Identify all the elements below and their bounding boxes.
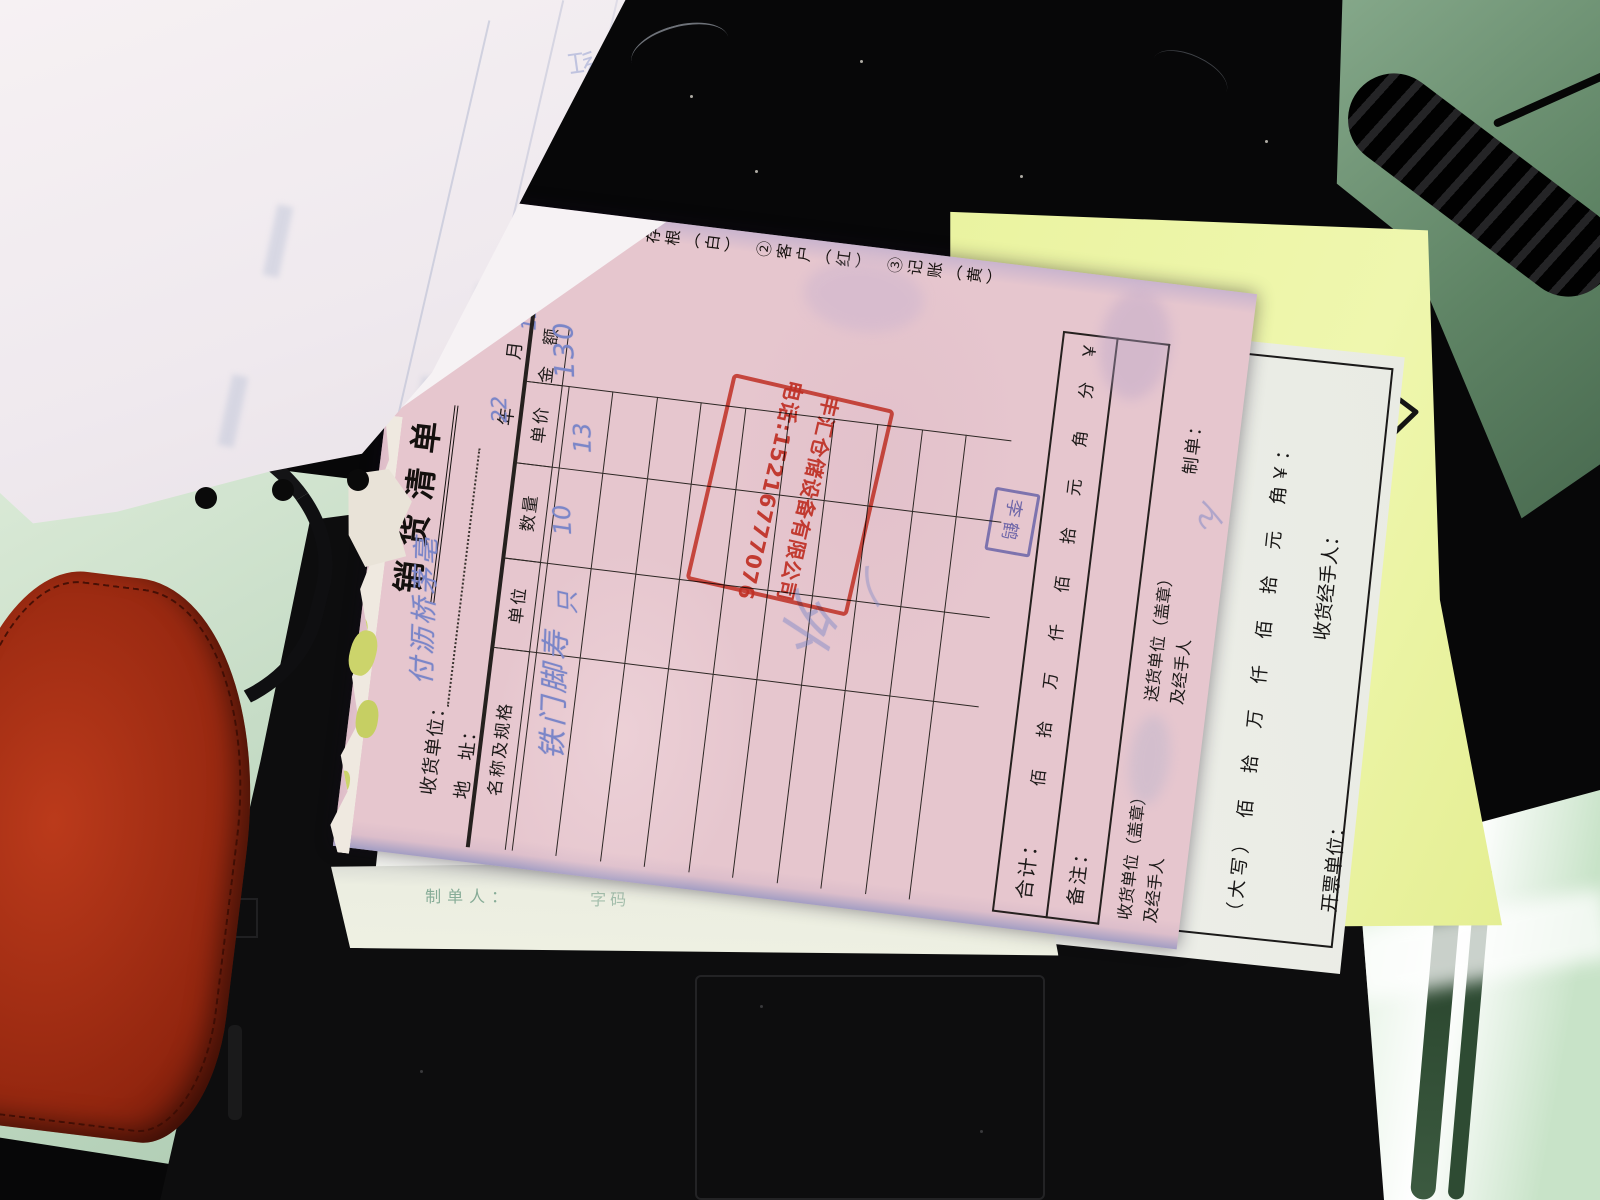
digit-header: 拾	[1051, 510, 1082, 561]
ghost-text-smudge	[218, 374, 249, 448]
digit-header: 分	[1069, 365, 1100, 416]
dust-speck	[760, 1005, 763, 1008]
dust-speck	[1020, 175, 1023, 178]
year-handwriting: 22	[487, 396, 511, 423]
ghost-character: 红	[566, 43, 597, 83]
punch-hole	[272, 479, 294, 501]
photo-scene: 红 （大写） 佰 拾 万 仟 佰 拾 元 角￥： 收货经手人： 开票单位： 客户…	[0, 0, 1600, 1200]
dust-speck	[1265, 140, 1268, 143]
amount-handwriting: 130	[548, 320, 581, 379]
trackpad-outline	[695, 975, 1045, 1200]
dust-speck	[420, 1070, 423, 1073]
consignee-label: 收货单位：	[414, 696, 452, 796]
hair-strand	[625, 13, 735, 87]
pink-sales-form: ①存根（白） ②客户（红） ③记账（黄） 销货清单 收货单位： 付沥桥茅亳 地 …	[333, 191, 1257, 950]
digit-header: 仟	[1039, 607, 1070, 658]
dust-speck	[690, 95, 693, 98]
laptop-slot	[228, 1025, 242, 1120]
price-handwriting: 13	[568, 422, 597, 453]
total-label: 合计：	[1005, 800, 1047, 915]
digit-header: 佰	[1045, 558, 1076, 609]
receiver-stamp-label: 收货单位（盖章） 及经手人	[1112, 787, 1179, 924]
dust-speck	[755, 170, 758, 173]
sender-stamp-label: 送货单位（盖章） 及经手人	[1139, 569, 1206, 706]
unit-handwriting: 只	[548, 591, 582, 615]
digit-header: 角	[1063, 413, 1094, 464]
table-cell	[934, 612, 989, 707]
hair-strand	[1145, 40, 1234, 110]
ghost-text-smudge	[263, 204, 294, 278]
digit-header: 元	[1057, 461, 1088, 512]
item-name-handwriting: 铁门脚寿	[529, 627, 576, 760]
digit-header: 万	[1033, 655, 1064, 706]
qty-handwriting: 10	[548, 504, 578, 536]
dust-speck	[860, 60, 863, 63]
dust-speck	[980, 1130, 983, 1133]
maker-value: 字码	[590, 886, 630, 910]
remark-label: 备注：	[1058, 841, 1094, 921]
maker-label: 制单人：	[425, 883, 513, 907]
digit-header: 拾	[1027, 703, 1058, 754]
punch-hole	[195, 487, 217, 509]
consignee-handwriting: 付沥桥茅亳	[400, 534, 444, 685]
form-maker-label: 制单：	[1177, 415, 1209, 476]
digit-header: 佰	[1021, 752, 1052, 803]
blue-name-chop: 李鹤	[984, 487, 1040, 558]
punch-hole	[347, 469, 369, 491]
